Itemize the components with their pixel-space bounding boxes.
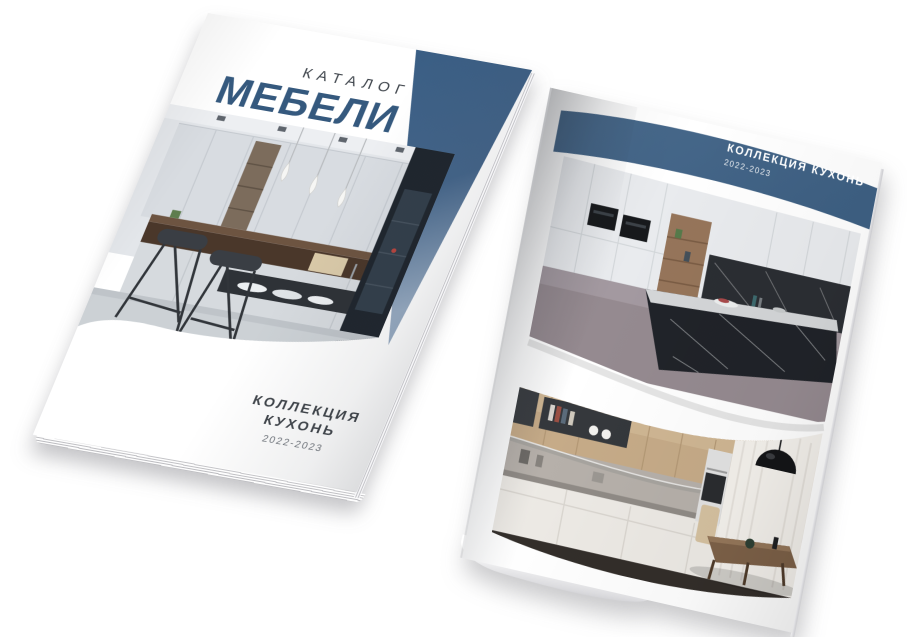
inner-page: КОЛЛЕКЦИЯ КУХОНЬ 2022-2023 [462, 88, 882, 633]
inner-page-sheet: КОЛЛЕКЦИЯ КУХОНЬ 2022-2023 [462, 88, 882, 633]
cover-photo [77, 104, 455, 379]
cover-page: КАТАЛОГ МЕБЕЛИ КОЛЛЕКЦИЯ КУХОНЬ 2022-202… [33, 13, 532, 492]
catalog-mockup-scene: КОЛЛЕКЦИЯ КУХОНЬ 2022-2023 [0, 0, 907, 637]
